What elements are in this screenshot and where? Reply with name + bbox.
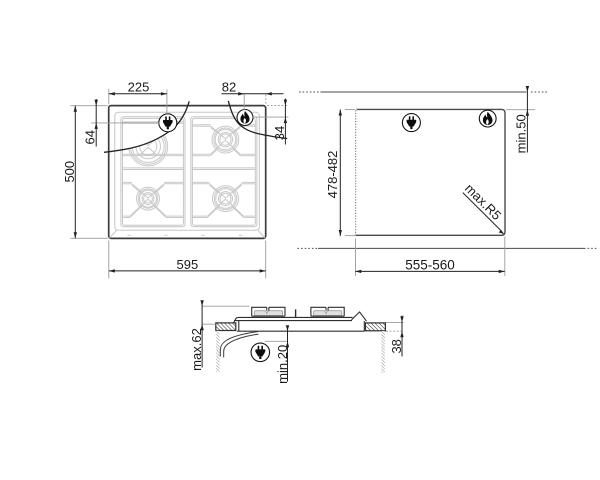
svg-text:82: 82: [222, 80, 236, 95]
svg-text:min.50: min.50: [513, 114, 528, 153]
svg-text:38: 38: [389, 339, 404, 353]
svg-text:max.R5: max.R5: [462, 181, 504, 223]
svg-text:64: 64: [82, 130, 97, 144]
svg-text:478-482: 478-482: [325, 151, 340, 199]
svg-text:595: 595: [177, 257, 199, 272]
svg-text:min.20: min.20: [275, 345, 290, 384]
svg-text:555-560: 555-560: [405, 258, 455, 273]
svg-text:225: 225: [128, 80, 150, 95]
svg-text:34: 34: [272, 126, 287, 140]
svg-text:500: 500: [62, 161, 77, 183]
svg-text:max.62: max.62: [189, 328, 204, 371]
